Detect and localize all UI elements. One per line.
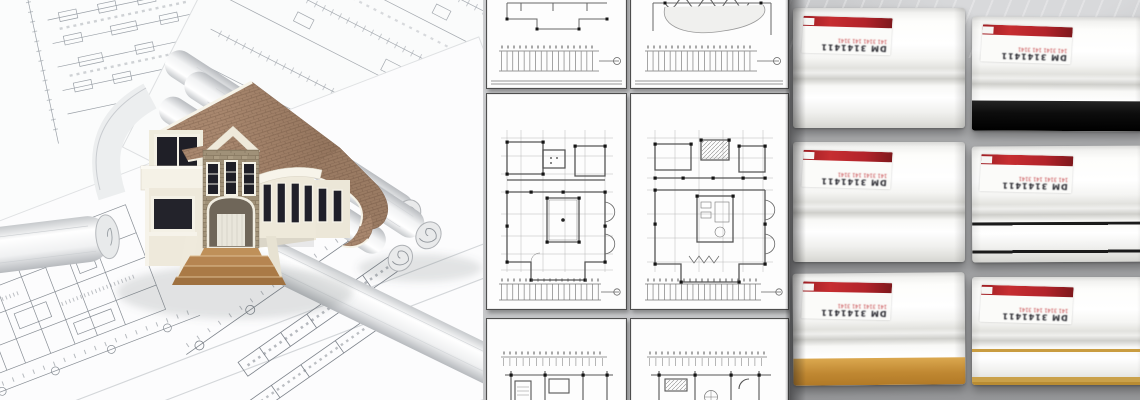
label-red-bar — [982, 24, 1073, 37]
moulding-sample-bottom-left: DM 3141411 141 3141 141 3141 — [793, 272, 966, 385]
sample-label: DM 3141411 141 3141 141 3141 — [801, 150, 893, 189]
house-on-blueprints-illustration — [0, 0, 483, 400]
label-red-bar — [802, 281, 892, 293]
moulding-sample-middle-right: DM 3141411 141 3141 141 3141 — [972, 146, 1140, 263]
plan-sheet-middle-left — [486, 93, 627, 310]
moulding-sample-bottom-right: DM 3141411 141 3141 141 3141 — [972, 277, 1140, 385]
plan-sheet-middle-right — [630, 93, 789, 310]
sample-stripe — [972, 349, 1140, 385]
moulding-sample-top-left: DM 3141411 141 3141 141 3141 — [793, 8, 965, 128]
left-panel-house-photo — [0, 0, 483, 400]
architecture-banner: DM 3141411 141 3141 141 3141 DM 3141411 … — [0, 0, 1140, 400]
label-red-bar — [981, 154, 1073, 166]
sample-label: DM 3141411 141 3141 141 3141 — [980, 285, 1074, 325]
label-red-bar — [803, 16, 893, 28]
sample-stripe — [972, 222, 1140, 257]
sample-label: DM 3141411 141 3141 141 3141 — [801, 281, 892, 320]
sample-label: DM 3141411 141 3141 141 3141 — [801, 16, 893, 55]
sample-stripe — [972, 101, 1140, 132]
label-code: DM 3141411 — [801, 307, 891, 320]
moulding-sample-top-right: DM 3141411 141 3141 141 3141 — [972, 17, 1140, 132]
label-code: DM 3141411 — [980, 180, 1072, 193]
plan-sheet-bottom-left — [486, 318, 627, 400]
right-panel-moulding-samples: DM 3141411 141 3141 141 3141 DM 3141411 … — [790, 0, 1140, 400]
moulding-sample-middle-left: DM 3141411 141 3141 141 3141 — [793, 142, 965, 262]
sample-label: DM 3141411 141 3141 141 3141 — [980, 154, 1074, 193]
label-red-bar — [982, 285, 1074, 298]
middle-panel-floor-plans — [483, 0, 790, 400]
plan-sheet-top-right — [630, 0, 789, 89]
plan-sheet-bottom-right — [630, 318, 789, 400]
plan-sheet-top-left — [486, 0, 627, 89]
sample-label: DM 3141411 141 3141 141 3141 — [980, 24, 1073, 64]
sample-stripe — [793, 357, 965, 385]
label-red-bar — [803, 150, 893, 162]
